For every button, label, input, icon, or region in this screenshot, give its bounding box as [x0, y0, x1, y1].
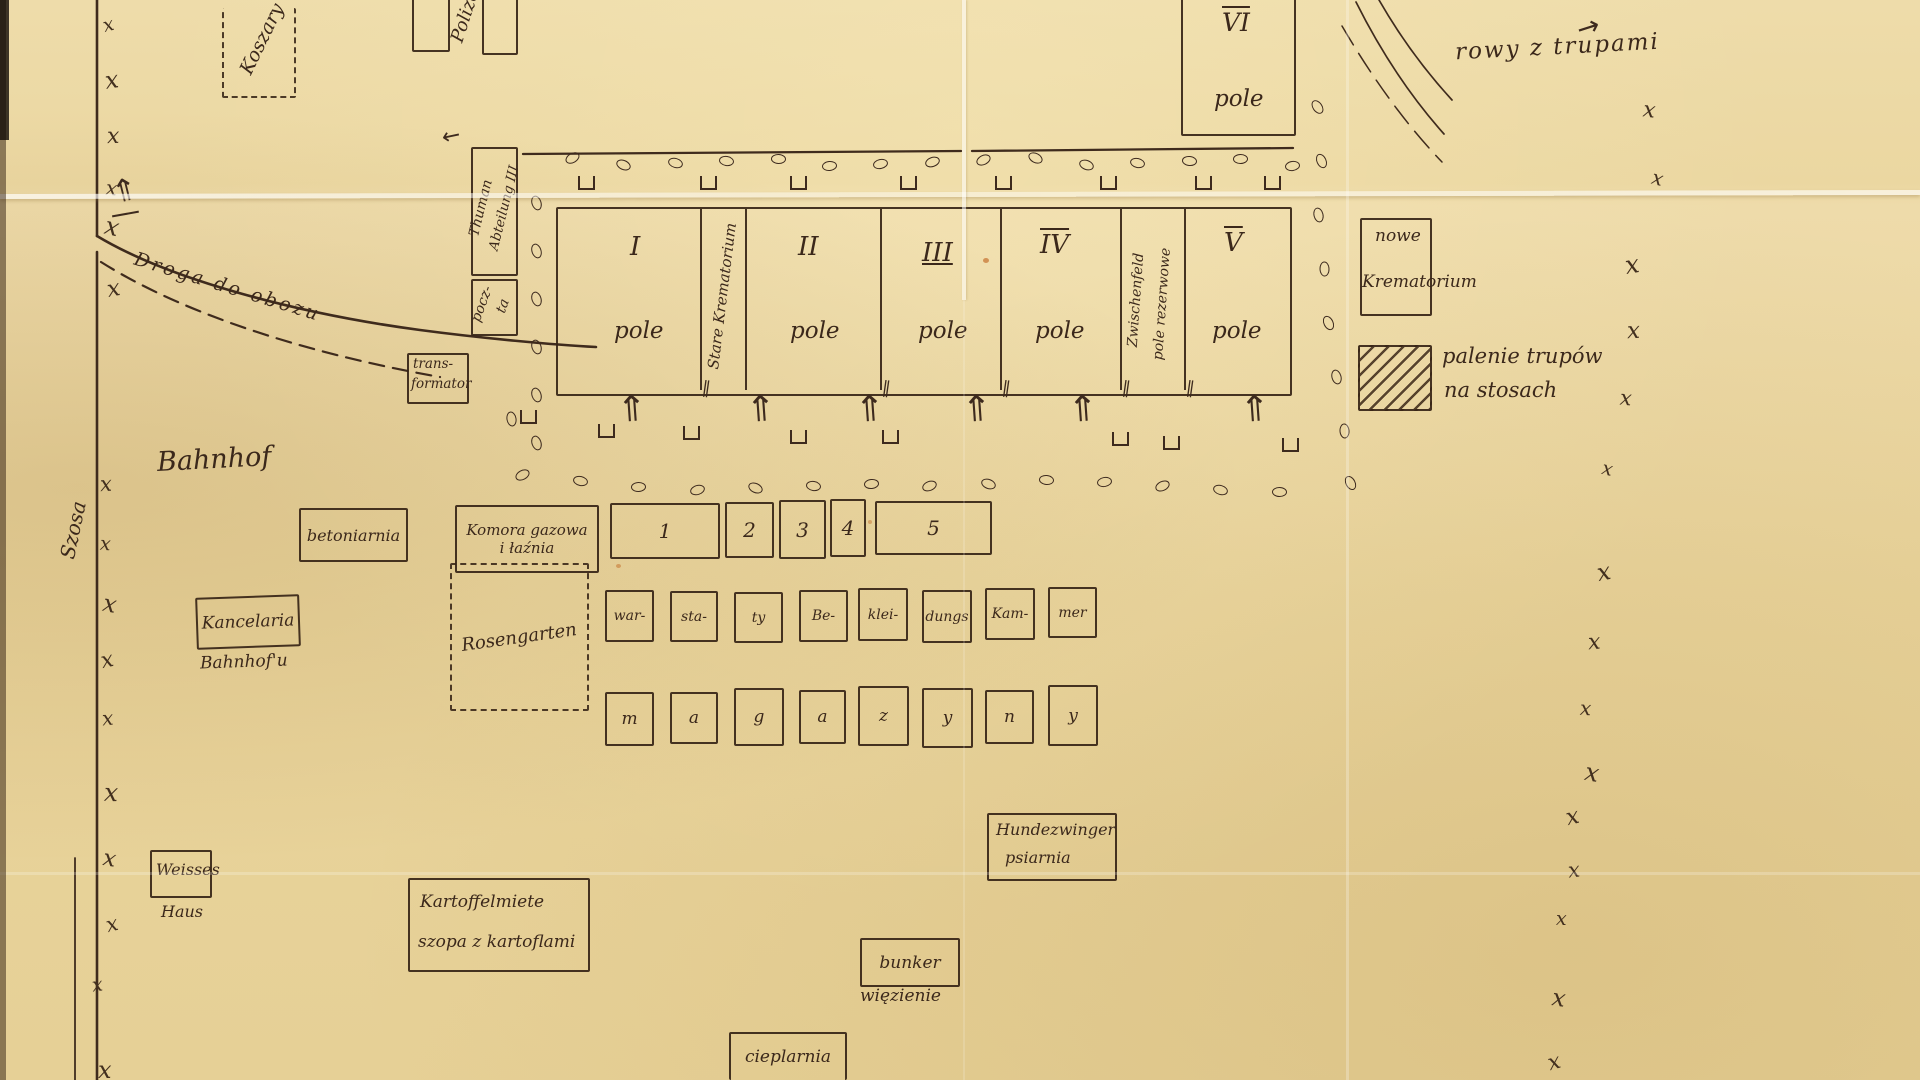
pyres-label-line1: palenie trupów [1442, 344, 1603, 368]
workshop-label-8: mer [1058, 605, 1086, 621]
fence-post-square [900, 176, 917, 190]
divider-field4-zwischenfeld [1120, 209, 1122, 390]
cieplarnia-box: cieplarnia [729, 1032, 847, 1080]
fence-post-square [790, 176, 807, 190]
nowe-krematorium-label-line2: Krematorium [1362, 272, 1477, 292]
boundary-x-mark: x [91, 973, 104, 996]
workshop-label-3: ty [752, 610, 766, 626]
kancelaria-sub-label: Bahnhof'u [200, 650, 288, 673]
polizei-building-right [482, 0, 518, 55]
field-1-label: pole [614, 318, 664, 344]
field-3-label: pole [918, 318, 968, 344]
workshop-label-7: Kam- [992, 606, 1029, 622]
workshop-box-2: sta- [670, 591, 718, 642]
gate-arrow-icon: ⇑ [961, 391, 994, 429]
barrack-3-label: 3 [796, 518, 809, 542]
ditch-arc-2 [1379, 0, 1452, 100]
fence-post-square [683, 426, 700, 440]
workshop-box-6: dungs [922, 590, 972, 643]
workshop-label-5: klei- [868, 607, 898, 623]
fence-post-square [700, 176, 717, 190]
boundary-x-mark: x [1556, 908, 1567, 930]
fields-outer-box [556, 207, 1292, 396]
barrack-4-box: 4 [830, 499, 866, 557]
magazyn-label-2: a [689, 708, 699, 728]
road-curve-dashed [101, 262, 440, 377]
hundezwinger-label-line1: Hundezwinger [996, 820, 1115, 839]
field-5-numeral: V [1224, 228, 1243, 258]
divider-field1-strip [700, 209, 702, 390]
boundary-x-mark: x [1627, 318, 1641, 344]
field-vi-label: pole [1214, 86, 1264, 112]
field-3-numeral: III [922, 238, 953, 268]
ditch-arc-3 [1342, 26, 1442, 162]
boundary-x-mark: x [103, 778, 118, 807]
komora-label-line2: i łaźnia [500, 539, 555, 557]
fence-post-square [520, 410, 537, 424]
boundary-x-mark: x [1619, 386, 1633, 411]
fence-post-square [1195, 176, 1212, 190]
boundary-x-mark: x [1567, 857, 1581, 882]
workshop-box-8: mer [1048, 587, 1097, 638]
workshop-box-7: Kam- [985, 588, 1035, 640]
magazyn-box-8: y [1048, 685, 1098, 746]
barrack-5-box: 5 [875, 501, 992, 555]
boundary-x-mark: x [99, 533, 111, 556]
field-5-label: pole [1212, 318, 1262, 344]
workshop-box-5: klei- [858, 588, 908, 641]
divider-field2-field3 [880, 209, 882, 390]
magazyn-label-4: a [817, 707, 827, 727]
barrack-1-label: 1 [659, 519, 672, 543]
magazyn-box-5: z [858, 686, 909, 746]
fence-post-square [1112, 432, 1129, 446]
barrack-3-box: 3 [779, 500, 826, 559]
boundary-x-mark: x [1587, 630, 1601, 656]
betoniarnia-label: betoniarnia [307, 526, 400, 545]
barrack-4-label: 4 [842, 516, 855, 540]
magazyn-label-6: y [943, 708, 953, 728]
boundary-x-mark: x [1579, 696, 1592, 721]
gate-arrow-icon: ⇑ [1239, 391, 1272, 429]
fence-post-square [1282, 438, 1299, 452]
workshop-box-1: war- [605, 590, 654, 642]
workshop-box-4: Be- [799, 590, 848, 642]
hundezwinger-label-line2: psiarnia [1005, 848, 1071, 867]
barrack-1-box: 1 [610, 503, 720, 559]
divider-strip-field2 [745, 209, 747, 390]
field-4-numeral: IV [1040, 230, 1069, 260]
kartoffelmiete-label-line2: szopa z kartoflami [418, 932, 575, 952]
betoniarnia-box: betoniarnia [299, 508, 408, 562]
workshop-box-3: ty [734, 592, 783, 643]
field-vi-numeral: VI [1222, 8, 1250, 37]
kartoffelmiete-label-line1: Kartoffelmiete [420, 892, 544, 912]
magazyn-box-4: a [799, 690, 846, 744]
field-4-label: pole [1035, 318, 1085, 344]
magazyn-label-3: g [754, 707, 765, 727]
magazyn-box-1: m [605, 692, 654, 746]
bahnhof-label: Bahnhof [156, 441, 272, 478]
fence-post-square [598, 424, 615, 438]
boundary-x-mark: x [98, 1056, 112, 1080]
road-curve-solid [97, 236, 596, 347]
gate-arrow-icon: ⇑ [745, 391, 778, 429]
field-1-numeral: I [630, 232, 640, 262]
workshop-label-1: war- [614, 608, 646, 624]
fence-post-oval [770, 154, 785, 165]
rosengarten-dashed-box: Rosengarten [450, 563, 589, 711]
fence-post-square [1163, 436, 1180, 450]
field-2-numeral: II [798, 232, 819, 262]
barrack-2-box: 2 [725, 502, 774, 558]
workshop-label-2: sta- [681, 609, 707, 625]
fence-post-square [995, 176, 1012, 190]
fence-top-line-left [523, 151, 961, 154]
magazyn-label-1: m [621, 709, 637, 729]
pyres-label-line2: na stosach [1444, 378, 1557, 402]
bunker-label: bunker [879, 953, 940, 973]
bunker-box: bunker [860, 938, 960, 987]
magazyn-label-8: y [1068, 706, 1078, 726]
magazyn-box-7: n [985, 690, 1034, 744]
bunker-sub-label: więzienie [860, 986, 941, 1006]
magazyn-label-5: z [879, 706, 888, 726]
field-2-label: pole [790, 318, 840, 344]
komora-label-line1: Komora gazowa [466, 521, 587, 539]
divider-zwischenfeld-field5 [1184, 209, 1186, 390]
fence-post-square [578, 176, 595, 190]
workshop-label-6: dungs [925, 609, 968, 625]
workshop-label-4: Be- [812, 608, 835, 624]
scanned-camp-map: Koszary Polizei VI pole rowy z trupami →… [0, 0, 1920, 1080]
barrack-5-label: 5 [927, 516, 940, 540]
fence-post-square [1264, 176, 1281, 190]
boundary-x-mark: x [99, 472, 112, 497]
fence-post-square [1100, 176, 1117, 190]
weisses-sub-label: Haus [161, 902, 203, 921]
rosengarten-label: Rosengarten [460, 619, 578, 656]
transformator-label-line1: trans- [413, 356, 453, 372]
cieplarnia-label: cieplarnia [745, 1047, 831, 1067]
kancelaria-label: Kancelaria [201, 610, 294, 633]
magazyn-box-6: y [922, 688, 973, 748]
fence-post-square [790, 430, 807, 444]
barrack-2-label: 2 [743, 518, 756, 542]
magazyn-box-2: a [670, 692, 718, 744]
divider-field3-field4 [1000, 209, 1002, 390]
boundary-x-mark: x [107, 124, 120, 149]
kancelaria-box: Kancelaria [195, 594, 301, 650]
fence-top-line-right [972, 148, 1293, 151]
transformator-label-line2: formator [411, 376, 471, 392]
gate-arrow-icon: ⇑ [1067, 391, 1100, 429]
pyres-hatched-box [1358, 345, 1432, 411]
magazyn-box-3: g [734, 688, 784, 746]
gate-arrow-icon: ⇑ [616, 391, 649, 429]
fence-post-square [882, 430, 899, 444]
nowe-krematorium-label-line1: nowe [1375, 226, 1421, 246]
boundary-x-mark: x [101, 706, 114, 731]
fence-post-oval [1272, 487, 1287, 497]
weisses-label: Weisses [156, 860, 220, 879]
magazyn-label-7: n [1004, 707, 1015, 727]
